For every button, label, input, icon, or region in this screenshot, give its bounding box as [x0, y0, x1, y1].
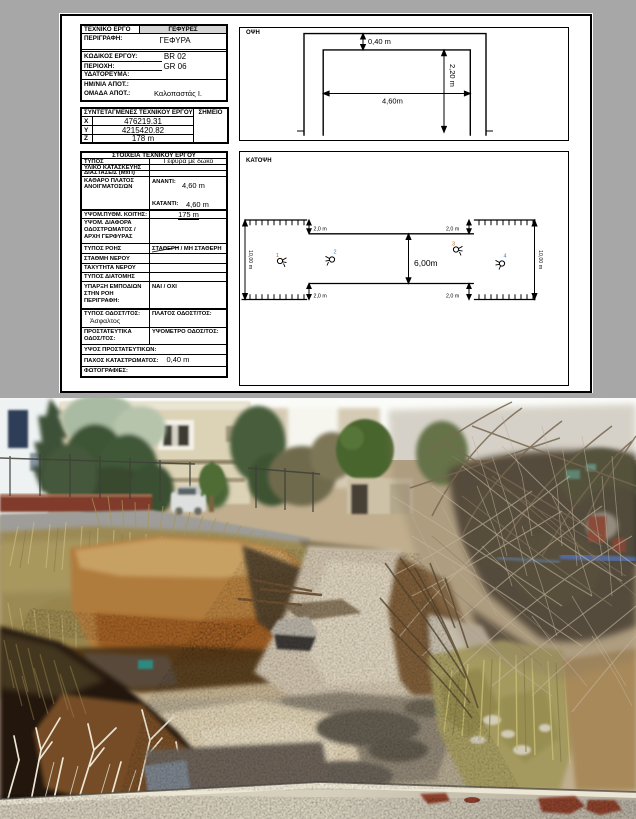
svg-text:2: 2 [334, 249, 337, 255]
svg-text:10,00 m: 10,00 m [537, 250, 543, 270]
svg-text:2,0 m: 2,0 m [446, 226, 460, 232]
svg-text:4,60m: 4,60m [382, 97, 403, 106]
svg-text:6,00m: 6,00m [414, 258, 438, 268]
svg-text:4: 4 [504, 253, 507, 259]
svg-text:0,40 m: 0,40 m [368, 37, 391, 46]
svg-text:2,0 m: 2,0 m [314, 293, 328, 299]
svg-text:2,0 m: 2,0 m [314, 226, 328, 232]
svg-text:2,0 m: 2,0 m [446, 293, 460, 299]
svg-text:2,20 m: 2,20 m [448, 64, 457, 87]
svg-text:1: 1 [276, 253, 279, 259]
svg-text:10,00 m: 10,00 m [247, 250, 253, 270]
svg-text:3: 3 [452, 241, 455, 247]
